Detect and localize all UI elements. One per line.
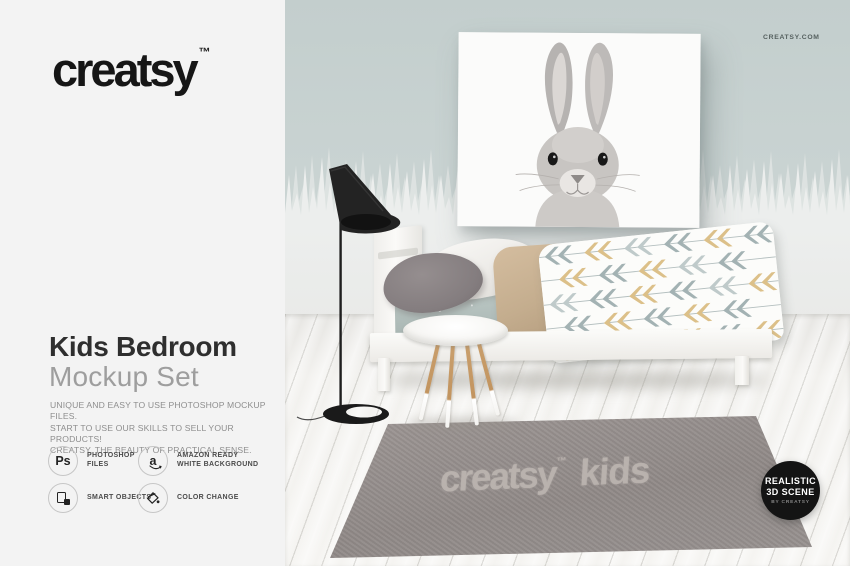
color-change-icon <box>138 483 168 513</box>
bed-leg <box>735 356 749 385</box>
smart-objects-icon <box>48 483 78 513</box>
trademark-symbol: ™ <box>556 456 567 467</box>
floor-lamp <box>295 160 405 430</box>
rug-brand-text: creatsy™kids <box>439 449 651 500</box>
photoshop-icon: Ps <box>48 446 78 476</box>
amazon-smile-icon <box>149 465 163 471</box>
trademark-symbol: ™ <box>199 45 211 59</box>
description-line: START TO USE OUR SKILLS TO SELL YOUR PRO… <box>50 423 285 446</box>
website-url: CREATSY.COM <box>763 34 820 41</box>
feature-label: PHOTOSHOP FILES <box>87 452 135 469</box>
feature-photoshop-files: Ps PHOTOSHOP FILES <box>48 446 135 476</box>
table-shadow <box>407 418 519 429</box>
amazon-icon: a <box>138 446 168 476</box>
product-subtitle: Mockup Set <box>49 361 199 393</box>
product-title: Kids Bedroom <box>49 331 237 363</box>
feature-label: AMAZON READY WHITE BACKGROUND <box>177 452 258 469</box>
brand-logo: creatsy™ <box>52 42 211 97</box>
rabbit-poster <box>457 32 700 228</box>
bed-shadow <box>380 372 770 388</box>
realistic-3d-scene-badge: REALISTIC 3D SCENE BY CREATSY <box>761 461 820 520</box>
feature-smart-objects: SMART OBJECTS <box>48 483 151 513</box>
feature-label: COLOR CHANGE <box>177 494 239 503</box>
branded-rug: creatsy™kids <box>320 412 820 562</box>
brand-logo-text: creatsy <box>52 43 196 96</box>
rabbit-illustration <box>457 32 700 228</box>
description-line: UNIQUE AND EASY TO USE PHOTOSHOP MOCKUP … <box>50 400 285 423</box>
side-table-top <box>403 315 508 346</box>
bedroom-scene: CREATSY.COM <box>285 0 850 566</box>
info-panel: creatsy™ Kids Bedroom Mockup Set UNIQUE … <box>0 0 285 566</box>
mockup-promo-image: creatsy™ Kids Bedroom Mockup Set UNIQUE … <box>0 0 850 566</box>
feature-color-change: COLOR CHANGE <box>138 483 239 513</box>
feature-amazon-ready: a AMAZON READY WHITE BACKGROUND <box>138 446 258 476</box>
